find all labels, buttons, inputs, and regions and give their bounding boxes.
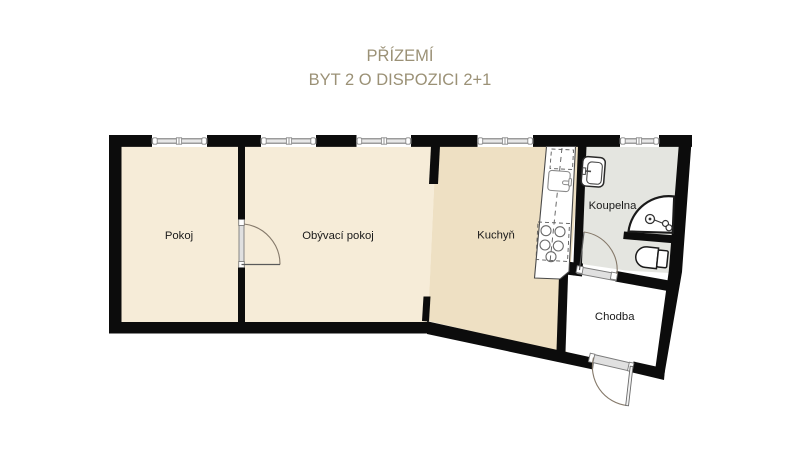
svg-text:PŘÍZEMÍ: PŘÍZEMÍ: [367, 46, 434, 65]
svg-text:BYT 2 O DISPOZICI 2+1: BYT 2 O DISPOZICI 2+1: [309, 71, 492, 89]
svg-text:Obývací pokoj: Obývací pokoj: [302, 230, 374, 242]
svg-text:Koupelna: Koupelna: [589, 200, 637, 212]
svg-text:Kuchyň: Kuchyň: [477, 230, 515, 242]
svg-text:Pokoj: Pokoj: [165, 230, 193, 242]
svg-text:Chodba: Chodba: [595, 311, 635, 323]
